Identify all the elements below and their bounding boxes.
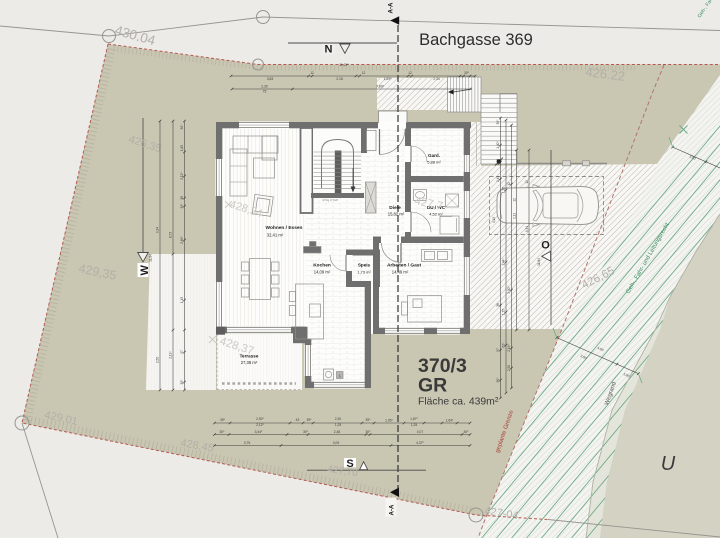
svg-text:2,30: 2,30 <box>261 85 268 89</box>
svg-text:2,92⁵: 2,92⁵ <box>256 417 264 421</box>
svg-text:11,84: 11,84 <box>537 258 541 266</box>
svg-text:27,38 m²: 27,38 m² <box>241 360 258 365</box>
svg-text:39⁵: 39⁵ <box>306 418 312 422</box>
svg-text:A-A: A-A <box>389 504 396 516</box>
svg-text:Speis: Speis <box>358 263 371 268</box>
svg-text:N: N <box>325 44 333 56</box>
svg-text:8,73: 8,73 <box>169 232 173 238</box>
svg-text:14,09 m²: 14,09 m² <box>314 270 331 275</box>
svg-text:39⁵: 39⁵ <box>220 418 226 422</box>
svg-text:1,25: 1,25 <box>335 423 342 427</box>
svg-text:39⁵: 39⁵ <box>180 203 184 209</box>
svg-text:1,25: 1,25 <box>502 187 506 193</box>
svg-text:11,21⁵: 11,21⁵ <box>339 63 349 67</box>
svg-text:1,44⁵: 1,44⁵ <box>502 258 506 266</box>
svg-text:4,37⁵: 4,37⁵ <box>416 441 424 445</box>
svg-text:1,15: 1,15 <box>502 309 506 315</box>
svg-text:GR: GR <box>418 375 447 397</box>
svg-text:1,65: 1,65 <box>180 145 184 151</box>
svg-text:1,25: 1,25 <box>411 423 418 427</box>
svg-text:2,45: 2,45 <box>496 176 500 182</box>
svg-text:Diele: Diele <box>389 205 401 211</box>
svg-text:Fläche ca. 439m²: Fläche ca. 439m² <box>418 397 499 408</box>
svg-text:2,48: 2,48 <box>334 430 341 434</box>
svg-text:2,30: 2,30 <box>335 417 342 421</box>
svg-text:4,07: 4,07 <box>417 430 424 434</box>
svg-text:9,34: 9,34 <box>156 227 160 233</box>
svg-text:Bachgasse 369: Bachgasse 369 <box>419 31 533 49</box>
svg-text:30⁵: 30⁵ <box>365 430 371 434</box>
svg-text:39⁵: 39⁵ <box>365 418 371 422</box>
svg-text:62⁵: 62⁵ <box>502 342 506 348</box>
svg-text:12: 12 <box>310 71 314 75</box>
svg-text:1,64⁵: 1,64⁵ <box>446 419 454 423</box>
svg-text:1,40⁵: 1,40⁵ <box>496 141 500 149</box>
svg-text:O: O <box>541 240 550 252</box>
svg-text:A-A: A-A <box>388 2 395 14</box>
svg-text:43: 43 <box>296 418 300 422</box>
svg-text:2,50: 2,50 <box>507 365 511 371</box>
svg-text:30⁵: 30⁵ <box>180 379 184 385</box>
svg-text:12: 12 <box>525 180 529 184</box>
svg-text:Gard.: Gard. <box>428 153 440 158</box>
svg-text:32,41 m²: 32,41 m² <box>267 233 284 238</box>
svg-text:30⁵: 30⁵ <box>180 124 184 130</box>
svg-text:Wohnen / Essen: Wohnen / Essen <box>266 225 303 231</box>
svg-text:W: W <box>139 265 151 276</box>
svg-text:30⁵: 30⁵ <box>464 71 470 75</box>
svg-text:2,11: 2,11 <box>513 213 517 219</box>
svg-text:18 Stg 17,5/28: 18 Stg 17,5/28 <box>322 199 338 202</box>
svg-text:2,12⁵: 2,12⁵ <box>256 423 264 427</box>
svg-text:2,69⁵: 2,69⁵ <box>180 236 184 244</box>
svg-text:1,15: 1,15 <box>180 297 184 303</box>
svg-text:12: 12 <box>408 71 412 75</box>
svg-text:30⁵: 30⁵ <box>463 430 469 434</box>
svg-text:30⁵: 30⁵ <box>219 430 225 434</box>
svg-text:3,83: 3,83 <box>267 77 274 81</box>
svg-text:1,89⁵: 1,89⁵ <box>383 77 392 81</box>
svg-text:4,19: 4,19 <box>492 217 496 223</box>
svg-text:U: U <box>661 453 676 475</box>
svg-text:7,89⁵: 7,89⁵ <box>376 85 385 89</box>
svg-text:30⁵: 30⁵ <box>496 119 500 125</box>
svg-text:1,67⁵: 1,67⁵ <box>410 417 418 421</box>
svg-text:1,73 m²: 1,73 m² <box>357 270 371 275</box>
svg-text:30⁵: 30⁵ <box>496 377 500 383</box>
svg-text:1,05⁵: 1,05⁵ <box>385 419 393 423</box>
svg-text:12: 12 <box>362 71 366 75</box>
svg-text:2,34: 2,34 <box>433 77 440 81</box>
svg-text:14,49 m²: 14,49 m² <box>392 270 409 275</box>
svg-text:2,19⁵: 2,19⁵ <box>169 351 173 359</box>
svg-text:30⁵: 30⁵ <box>303 430 309 434</box>
svg-text:1,25: 1,25 <box>496 159 500 165</box>
svg-text:5,88 m²: 5,88 m² <box>427 160 441 165</box>
svg-text:75: 75 <box>263 89 267 93</box>
svg-text:2,18: 2,18 <box>336 77 343 81</box>
svg-text:2,50: 2,50 <box>156 357 160 363</box>
svg-text:2,19⁵: 2,19⁵ <box>507 344 511 352</box>
svg-text:11,84: 11,84 <box>149 254 153 262</box>
svg-text:9,34: 9,34 <box>525 226 529 232</box>
svg-text:3,44⁵: 3,44⁵ <box>255 430 263 434</box>
svg-text:12: 12 <box>513 198 517 202</box>
svg-text:3,30⁵: 3,30⁵ <box>507 286 511 294</box>
svg-text:Arbeiten / Gast: Arbeiten / Gast <box>387 263 422 269</box>
svg-text:2,12⁵: 2,12⁵ <box>180 172 184 180</box>
svg-text:15,82 m²: 15,82 m² <box>388 212 405 217</box>
svg-text:Kochen: Kochen <box>313 263 331 269</box>
svg-text:3,75: 3,75 <box>244 441 251 445</box>
svg-text:3,09: 3,09 <box>333 441 340 445</box>
